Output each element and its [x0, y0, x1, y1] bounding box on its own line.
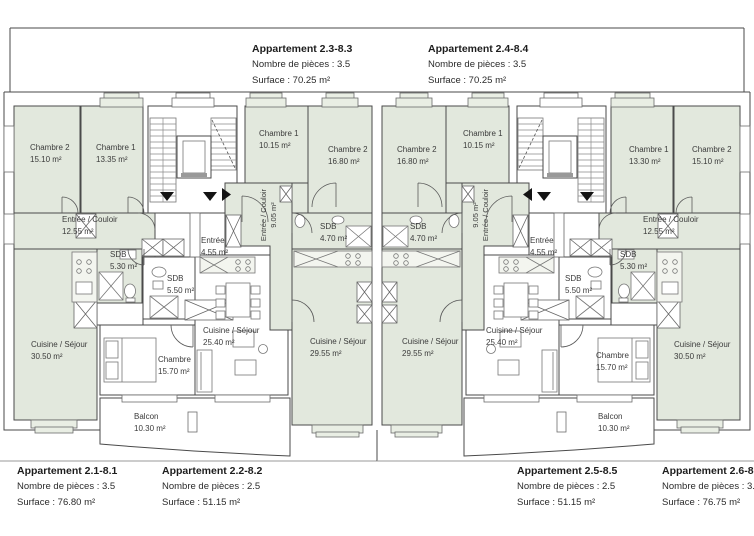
label-chambre1570-left: Chambre	[158, 355, 191, 364]
unit-legend-2-6: Appartement 2.6-8.6 Nombre de pièces : 3…	[662, 463, 754, 511]
label-entree-couloir-left: Entrée / Couloir	[62, 215, 118, 224]
floorplan-right-half-mirror	[377, 28, 754, 461]
unit-pieces: Nombre de pièces : 3.5	[662, 479, 754, 495]
label-cuisine3050-right-area: 30.50 m²	[674, 352, 706, 361]
label-chambre2-b-left-area: 16.80 m²	[328, 157, 360, 166]
label-sdb530-right: SDB	[620, 250, 636, 259]
label-chambre2-a-right: Chambre 2	[692, 145, 732, 154]
label-entree-couloir-left-area: 12.55 m²	[62, 227, 94, 236]
label-chambre2-a-left: Chambre 2	[30, 143, 70, 152]
label-cuisine2540-right-area: 25.40 m²	[486, 338, 518, 347]
label-sdb470-left: SDB	[320, 222, 336, 231]
label-sdb530-left-area: 5.30 m²	[110, 262, 137, 271]
label-sdb530-left: SDB	[110, 250, 126, 259]
label-chambre1-b-right: Chambre 1	[463, 129, 503, 138]
label-cuisine2955-right: Cuisine / Séjour	[402, 337, 459, 346]
unit-surface: Surface : 70.25 m²	[428, 73, 578, 89]
label-cuisine3050-right: Cuisine / Séjour	[674, 340, 731, 349]
label-chambre2-b-right: Chambre 2	[397, 145, 437, 154]
unit-surface: Surface : 70.25 m²	[252, 73, 402, 89]
label-chambre1-a-right: Chambre 1	[629, 145, 669, 154]
label-chambre1-a-left: Chambre 1	[96, 143, 136, 152]
label-chambre2-a-left-area: 15.10 m²	[30, 155, 62, 164]
label-chambre2-b-left: Chambre 2	[328, 145, 368, 154]
unit-surface: Surface : 76.80 m²	[17, 495, 167, 511]
label-balcon-left-area: 10.30 m²	[134, 424, 166, 433]
label-sdb550-left-area: 5.50 m²	[167, 286, 194, 295]
unit-title: Appartement 2.4-8.4	[428, 41, 578, 57]
label-cuisine2540-left: Cuisine / Séjour	[203, 326, 260, 335]
label-sdb550-left: SDB	[167, 274, 183, 283]
label-cuisine2955-left-area: 29.55 m²	[310, 349, 342, 358]
label-balcon-right-area: 10.30 m²	[598, 424, 630, 433]
label-couloir905-left: Entrée / Couloir	[259, 188, 268, 241]
label-couloir905-left-area: 9.05 m²	[269, 202, 278, 228]
label-couloir905-right: Entrée / Couloir	[481, 188, 490, 241]
unit-surface: Surface : 76.75 m²	[662, 495, 754, 511]
unit-pieces: Nombre de pièces : 2.5	[162, 479, 312, 495]
label-entree-couloir-right-area: 12.55 m²	[643, 227, 675, 236]
unit-pieces: Nombre de pièces : 2.5	[517, 479, 667, 495]
label-balcon-right: Balcon	[598, 412, 622, 421]
label-sdb470-right-area: 4.70 m²	[410, 234, 437, 243]
label-chambre1570-right-area: 15.70 m²	[596, 363, 628, 372]
label-chambre1-a-left-area: 13.35 m²	[96, 155, 128, 164]
unit-legend-2-1: Appartement 2.1-8.1 Nombre de pièces : 3…	[17, 463, 167, 511]
unit-legend-2-4: Appartement 2.4-8.4 Nombre de pièces : 3…	[428, 41, 578, 89]
label-sdb530-right-area: 5.30 m²	[620, 262, 647, 271]
label-chambre1-b-right-area: 10.15 m²	[463, 141, 495, 150]
label-couloir905-right-area: 9.05 m²	[471, 202, 480, 228]
label-entree-left: Entrée	[201, 236, 225, 245]
label-cuisine2955-right-area: 29.55 m²	[402, 349, 434, 358]
label-sdb470-right: SDB	[410, 222, 426, 231]
label-sdb550-right-area: 5.50 m²	[565, 286, 592, 295]
unit-title: Appartement 2.6-8.6	[662, 463, 754, 479]
unit-legend-2-5: Appartement 2.5-8.5 Nombre de pièces : 2…	[517, 463, 667, 511]
unit-pieces: Nombre de pièces : 3.5	[17, 479, 167, 495]
unit-legend-2-3: Appartement 2.3-8.3 Nombre de pièces : 3…	[252, 41, 402, 89]
unit-legend-2-2: Appartement 2.2-8.2 Nombre de pièces : 2…	[162, 463, 312, 511]
floorplan-page: Chambre 2 15.10 m² Chambre 1 13.35 m² Ch…	[0, 0, 754, 536]
floorplan-left-half	[0, 28, 377, 461]
unit-pieces: Nombre de pièces : 3.5	[428, 57, 578, 73]
unit-title: Appartement 2.3-8.3	[252, 41, 402, 57]
unit-surface: Surface : 51.15 m²	[162, 495, 312, 511]
label-sdb550-right: SDB	[565, 274, 581, 283]
label-entree-right: Entrée	[530, 236, 554, 245]
unit-surface: Surface : 51.15 m²	[517, 495, 667, 511]
label-entree-couloir-right: Entrée / Couloir	[643, 215, 699, 224]
label-chambre1-a-right-area: 13.30 m²	[629, 157, 661, 166]
label-chambre2-b-right-area: 16.80 m²	[397, 157, 429, 166]
label-chambre1-b-left-area: 10.15 m²	[259, 141, 291, 150]
unit-pieces: Nombre de pièces : 3.5	[252, 57, 402, 73]
label-chambre1570-left-area: 15.70 m²	[158, 367, 190, 376]
unit-title: Appartement 2.5-8.5	[517, 463, 667, 479]
label-chambre1570-right: Chambre	[596, 351, 629, 360]
label-entree-right-area: 4.55 m²	[530, 248, 557, 257]
label-entree-left-area: 4.55 m²	[201, 248, 228, 257]
unit-title: Appartement 2.2-8.2	[162, 463, 312, 479]
label-chambre1-b-left: Chambre 1	[259, 129, 299, 138]
label-cuisine2540-right: Cuisine / Séjour	[486, 326, 543, 335]
label-sdb470-left-area: 4.70 m²	[320, 234, 347, 243]
label-cuisine2540-left-area: 25.40 m²	[203, 338, 235, 347]
label-balcon-left: Balcon	[134, 412, 158, 421]
label-cuisine2955-left: Cuisine / Séjour	[310, 337, 367, 346]
unit-title: Appartement 2.1-8.1	[17, 463, 167, 479]
label-cuisine3050-left: Cuisine / Séjour	[31, 340, 88, 349]
label-chambre2-a-right-area: 15.10 m²	[692, 157, 724, 166]
label-cuisine3050-left-area: 30.50 m²	[31, 352, 63, 361]
